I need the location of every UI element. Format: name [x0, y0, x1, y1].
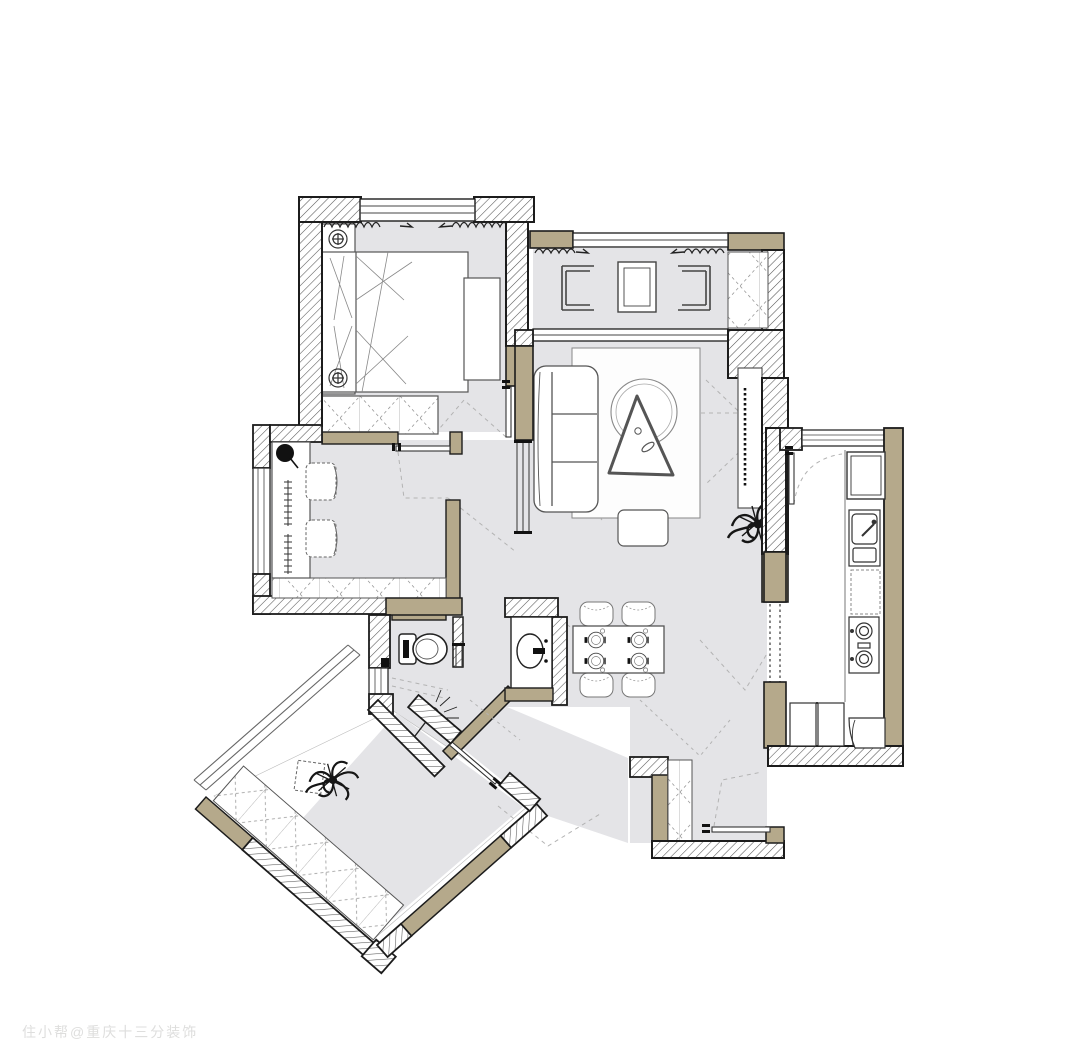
dining-chair	[580, 673, 613, 697]
gas-stove	[849, 617, 879, 673]
wall-tan	[322, 432, 398, 444]
floor-drain	[381, 658, 389, 667]
corner-shelf	[849, 718, 885, 748]
wall-tan	[884, 428, 903, 763]
wardrobe	[322, 396, 438, 434]
wall	[299, 222, 322, 426]
bedroom-window	[360, 199, 475, 221]
dining-chair	[622, 673, 655, 697]
dresser	[464, 278, 500, 380]
wall	[652, 841, 784, 858]
shoe-cabinet	[668, 760, 692, 842]
low-cabinet	[272, 578, 446, 598]
balcony-sill	[533, 329, 728, 341]
ottoman	[618, 510, 668, 546]
wall	[515, 330, 533, 346]
kitchen	[764, 428, 903, 766]
wall-tan	[446, 500, 460, 613]
wall	[253, 425, 270, 468]
balcony-cabinet	[728, 252, 768, 328]
washbasin	[511, 617, 552, 691]
wall	[270, 425, 322, 442]
wall-tan	[764, 682, 786, 748]
balcony-window	[573, 233, 728, 247]
dining-chair	[580, 602, 613, 626]
wall	[474, 197, 534, 222]
study-window	[253, 468, 270, 574]
wall	[768, 746, 903, 766]
wall-tan	[450, 432, 462, 454]
floor-plan-drawing	[0, 0, 1080, 1062]
wall-tan	[728, 233, 784, 250]
wall-tan	[515, 346, 533, 440]
pocket-door	[514, 440, 532, 534]
tv-cabinet	[738, 368, 762, 508]
wall-tan	[652, 775, 668, 843]
wall-tan	[505, 688, 553, 701]
wall	[505, 598, 558, 617]
wall-tan	[530, 231, 573, 248]
desk	[272, 442, 310, 578]
fridge	[847, 452, 885, 499]
base-cabinets	[790, 703, 844, 746]
dining-chair	[622, 602, 655, 626]
kitchen-window	[802, 430, 884, 446]
wall	[552, 617, 567, 705]
dining-table	[573, 626, 664, 673]
wall	[253, 596, 396, 614]
sofa	[534, 366, 598, 512]
wall	[299, 197, 361, 222]
sink	[849, 510, 880, 566]
balcony-side-table	[618, 262, 656, 312]
floor-plan-canvas: 住小帮@重庆十三分装饰	[0, 0, 1080, 1062]
wall	[630, 757, 668, 777]
wall	[506, 222, 528, 346]
wall-tan	[386, 598, 462, 615]
kitchen-sliding-door	[770, 604, 780, 682]
toilet	[399, 634, 447, 664]
wall-tan	[764, 552, 786, 602]
base-unit-dashed	[851, 570, 880, 614]
watermark: 住小帮@重庆十三分装饰	[22, 1022, 198, 1042]
